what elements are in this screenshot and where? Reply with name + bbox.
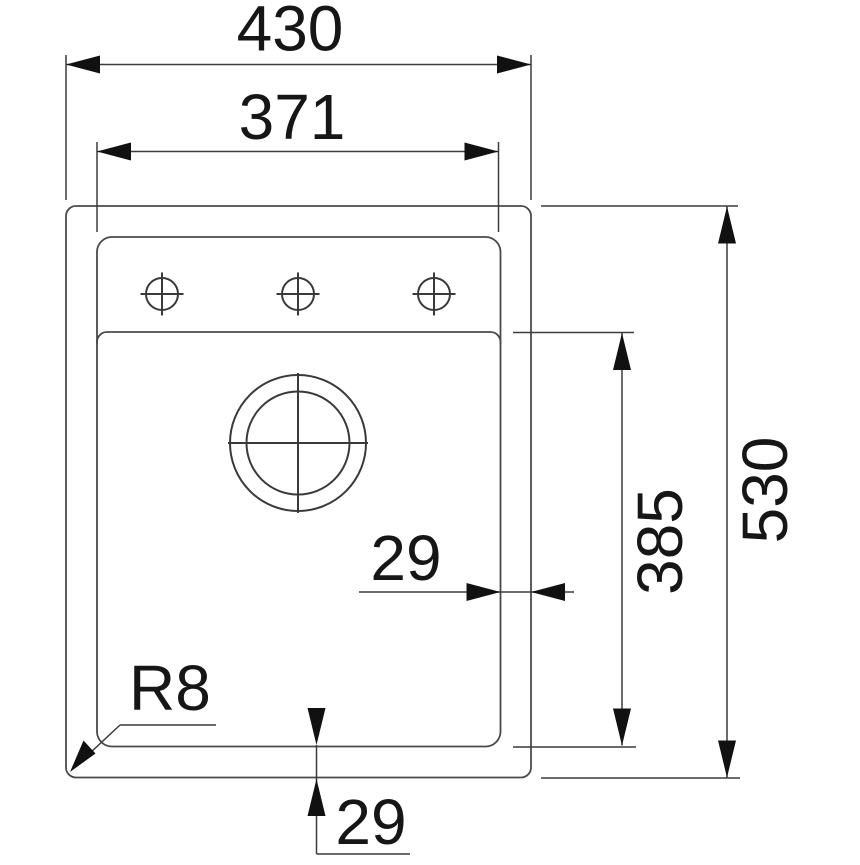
svg-text:530: 530 [729,437,801,544]
svg-text:29: 29 [370,522,441,594]
svg-text:R8: R8 [129,652,211,724]
svg-text:371: 371 [239,81,346,153]
svg-text:29: 29 [335,786,406,858]
svg-text:385: 385 [624,488,696,595]
svg-text:430: 430 [237,0,344,65]
